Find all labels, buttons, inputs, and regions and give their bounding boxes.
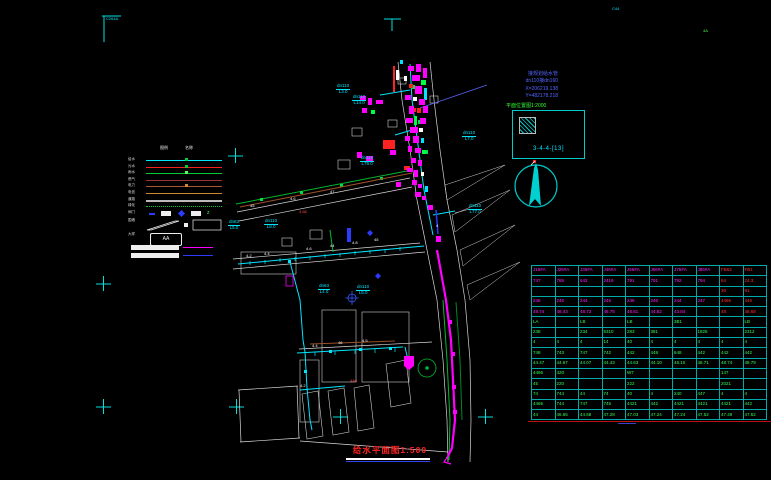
slope-hatch-layer [445, 165, 520, 300]
legend-row-label: 阀门 [128, 210, 135, 215]
table-cell: 246 [649, 296, 673, 306]
pipe-size-label: dn110L14.0 [352, 95, 366, 106]
table-cell: LB [743, 317, 767, 327]
micro-annotation: C44 [612, 7, 619, 11]
table-cell: 794 [696, 276, 720, 286]
table-cell: 1825 [696, 327, 720, 337]
table-cell: 4 [532, 338, 556, 348]
table-cell: 446 [743, 296, 767, 306]
table-cell: 4421 [696, 399, 720, 409]
table-cell: 48.73 [579, 307, 603, 317]
table-cell: 44.43 [602, 358, 626, 368]
table-cell: 4 [649, 338, 673, 348]
table-cell: 4466 [532, 368, 556, 378]
legend-row: 绿化 [127, 204, 231, 210]
legend-line-mark [185, 184, 188, 187]
table-cell: 747 [532, 276, 556, 286]
table-cell [696, 368, 720, 378]
legend-row-label: 给水 [128, 157, 135, 162]
table-cell: 742 [602, 348, 626, 358]
table-cell: 4 [649, 389, 673, 399]
micro-annotation: 4.66 [299, 210, 307, 214]
table-cell: J76#A [673, 266, 697, 276]
table-cell: 14 [602, 338, 626, 348]
table-cell: 448 [649, 348, 673, 358]
table-cell: 4 [696, 338, 720, 348]
legend-line-sample [146, 193, 222, 194]
table-row: J16#AJ26#AJ36#AJ46#AJ56#AJ66#AJ76#AJ86#A… [532, 266, 767, 276]
table-cell: 5310 [602, 327, 626, 337]
diamond-symbol [178, 210, 185, 217]
legend-line-sample [146, 200, 222, 203]
table-cell: 4421 [673, 399, 697, 409]
table-cell [649, 368, 673, 378]
table-cell [649, 379, 673, 389]
micro-annotation: 4.4 [264, 252, 270, 256]
table-cell: J56#A [626, 266, 650, 276]
table-row: 452202222021 [532, 379, 767, 389]
table-row: 74776564224197917917927946424.3 [532, 276, 767, 286]
table-cell [579, 379, 603, 389]
box-symbol [161, 211, 171, 216]
table-cell: 442 [626, 348, 650, 358]
table-row: 2462462442462462462442474466446 [532, 296, 767, 306]
table-cell: 744 [555, 389, 579, 399]
table-cell: 381 [649, 327, 673, 337]
table-cell: 44.10 [649, 358, 673, 368]
valve-symbol [149, 213, 155, 215]
table-cell [720, 327, 744, 337]
table-cell: 442 [649, 399, 673, 409]
north-arrow [515, 160, 557, 207]
table-cell: 48.79 [743, 358, 767, 368]
table-cell: 48.10 [673, 358, 697, 368]
annotation-line: Y=482178.218 [488, 93, 558, 100]
legend-header: 名称 [185, 145, 193, 151]
table-cell: 765 [555, 276, 579, 286]
detail-reference-box: 3-4-4-[13] [512, 110, 585, 159]
table-cell [579, 368, 603, 378]
detail-box-title: 平面位置图1:2000 [506, 102, 546, 109]
table-cell: 244 [673, 296, 697, 306]
table-cell: 442 [720, 348, 744, 358]
table-cell: 74 [602, 389, 626, 399]
table-cell: J46#A [602, 266, 626, 276]
table-cell: 48.74 [720, 358, 744, 368]
legend-row: 电信 [127, 191, 231, 197]
legend-line-sample [146, 206, 222, 208]
table-cell: 46.65 [555, 410, 579, 420]
legend-row-label: 绿化 [128, 203, 135, 208]
table-cell: 745 [602, 399, 626, 409]
table-cell: 48.76 [602, 307, 626, 317]
table-cell: 48.43 [555, 307, 579, 317]
micro-annotation: 45 [374, 238, 378, 242]
table-cell: 48 [720, 307, 744, 317]
table-cell: LB [626, 317, 650, 327]
table-cell: 244 [579, 296, 603, 306]
micro-annotation: 4.8 [352, 241, 358, 245]
legend-row: 电力 [127, 184, 231, 190]
table-cell: 2021 [720, 379, 744, 389]
pipe-size-label: dn110L7.0 [462, 131, 476, 142]
pipe-size-label: dn110L79.0 [360, 156, 374, 167]
table-row: 44657447477454421442442144214421442 [532, 399, 767, 409]
coordinate-annotation: 接规划给水管 dn110接dn160 X=206219.138 Y=482178… [488, 71, 558, 100]
table-row: 44.4744.6744.0744.4344.6344.1048.1048.71… [532, 358, 767, 368]
table-cell [696, 286, 720, 296]
table-cell: 47.52 [696, 410, 720, 420]
legend-line-sample [146, 186, 222, 187]
z-symbol: z [207, 210, 210, 216]
green-lines-layer [236, 170, 462, 460]
micro-annotation: 4.6 [290, 197, 296, 201]
table-cell [532, 286, 556, 296]
table-cell: 642 [579, 276, 603, 286]
title-underline-white [346, 458, 430, 460]
table-cell: 246 [602, 296, 626, 306]
red-elements-layer [383, 66, 419, 170]
table-cell: 283 [626, 327, 650, 337]
legend-row-label: 大样 [128, 232, 135, 237]
table-cell [696, 307, 720, 317]
legend-blue-line [183, 255, 213, 256]
table-cell: 2312 [743, 327, 767, 337]
table-cell: 743 [555, 348, 579, 358]
legend-magenta-line [183, 247, 213, 248]
micro-annotation: 4.6 [306, 247, 312, 251]
legend-row: 雨水 [127, 171, 231, 177]
legend-symbols-row: 阀门 z [127, 211, 231, 217]
table-cell [579, 286, 603, 296]
table-cell: 47.03 [626, 410, 650, 420]
table-cell: 47.52 [743, 410, 767, 420]
table-cell: 246 [532, 296, 556, 306]
table-cell [673, 368, 697, 378]
magenta-pipes-layer [286, 250, 455, 464]
table-cell: 744 [555, 399, 579, 409]
table-cell: 48.74 [532, 307, 556, 317]
legend-line-sample [146, 173, 222, 174]
annotation-line: X=206219.138 [488, 86, 558, 93]
table-cell: 2419 [602, 276, 626, 286]
micro-annotation: 4A6 [350, 379, 357, 383]
table-cell: 24.3 [743, 276, 767, 286]
table-underrule-red [528, 421, 771, 422]
table-cell: 748 [532, 348, 556, 358]
table-cell: LB [579, 317, 603, 327]
legend-row-label: 电信 [128, 190, 135, 195]
table-cell: 4 [720, 338, 744, 348]
table-row: 48.7448.4348.7348.7648.8144.8243.844848.… [532, 307, 767, 317]
table-cell: 4 [743, 338, 767, 348]
legend-row-label: 污水 [128, 164, 135, 169]
pipe-size-label: dn110L5.0 [356, 285, 370, 296]
well-schedule-table: J16#AJ26#AJ36#AJ46#AJ56#AJ66#AJ76#AJ86#A… [531, 265, 767, 420]
table-cell [555, 317, 579, 327]
table-cell: 74 [532, 389, 556, 399]
table-cell [743, 379, 767, 389]
table-cell: 791 [626, 276, 650, 286]
detail-sheet-number: 3-4-4-[13] [513, 146, 584, 152]
pipe-size-label: dn63L5.0 [228, 220, 240, 231]
table-cell: 791 [649, 276, 673, 286]
table-cell [673, 286, 697, 296]
legend-row: 污水 [127, 165, 231, 171]
table-cell [602, 317, 626, 327]
table-cell: 747 [579, 399, 603, 409]
green-circle-dot [425, 366, 429, 370]
table-cell: J36#A [579, 266, 603, 276]
roads-layer [233, 62, 471, 462]
title-underline-blue [346, 461, 430, 462]
table-cell [720, 317, 744, 327]
legend-line-mark [185, 165, 188, 168]
table-cell: 247 [696, 296, 720, 306]
table-row: 444144044444 [532, 338, 767, 348]
table-cell: 64 [720, 276, 744, 286]
table-row: 4466420W7147 [532, 368, 767, 378]
table-cell: 44.07 [579, 358, 603, 368]
table-row: 4446.6544.6847.2847.0347.2447.2447.5247.… [532, 410, 767, 420]
pipe-size-label: dn110L3.0 [336, 84, 350, 95]
hydrant-marker [404, 356, 414, 370]
legend-line-sample [146, 167, 222, 168]
table-cell: 447 [696, 389, 720, 399]
micro-annotation: 4.2 [246, 254, 252, 258]
legend-row-label: 电力 [128, 183, 135, 188]
legend-row-label: 燃气 [128, 177, 135, 182]
table-cell: 4 [579, 338, 603, 348]
table-cell: 44.63 [626, 358, 650, 368]
table-cell: 40 [626, 389, 650, 399]
table-cell: 747 [579, 348, 603, 358]
table-cell: 4 [743, 389, 767, 399]
table-cell: 442 [696, 348, 720, 358]
table-cell: 240 [673, 389, 697, 399]
table-cell: 44.68 [579, 410, 603, 420]
legend-bar [131, 253, 179, 258]
table-cell: LA [532, 317, 556, 327]
micro-annotation: 46 [338, 341, 342, 345]
table-underrule-blue [618, 423, 636, 424]
table-cell: 3B1 [673, 317, 697, 327]
table-cell: 4421 [626, 399, 650, 409]
table-cell: J26#A [555, 266, 579, 276]
micro-annotation: 44 [330, 244, 334, 248]
table-cell: 220 [555, 379, 579, 389]
table-cell [743, 368, 767, 378]
table-cell: J66#A [649, 266, 673, 276]
table-cell: 47.28 [602, 410, 626, 420]
table-cell: W7 [626, 368, 650, 378]
cad-drawing-canvas: 接规划给水管 dn110接dn160 X=206219.138 Y=482178… [0, 0, 771, 480]
table-cell: 4 [720, 389, 744, 399]
pipe-size-label: dn63L4.0 [318, 284, 330, 295]
table-cell: 81 [743, 286, 767, 296]
table-row: LALBLB3B1LB [532, 317, 767, 327]
table-cell: J16#A [532, 266, 556, 276]
table-cell: 648 [673, 348, 697, 358]
drawing-title: 给水平面图1:500 [300, 444, 480, 456]
table-cell: 442 [743, 348, 767, 358]
table-cell [602, 379, 626, 389]
pipe-size-label: dn110L8.0 [264, 219, 278, 230]
table-cell: 40 [626, 338, 650, 348]
legend-line-mark [185, 171, 188, 174]
table-cell: 246 [555, 296, 579, 306]
legend-row: 给水 [127, 158, 231, 164]
table-cell: 47.24 [673, 410, 697, 420]
pipe-size-label: dn110L77.0 [468, 204, 482, 215]
legend-line-sample [146, 160, 222, 161]
table-cell: J86#A [696, 266, 720, 276]
micro-annotation: 4 [436, 224, 438, 228]
table-cell: 44.67 [555, 358, 579, 368]
legend-header: 图例 [160, 145, 168, 151]
table-cell [626, 286, 650, 296]
table-cell: 4 [555, 338, 579, 348]
table-row: 748743747742442448648442442442 [532, 348, 767, 358]
table-cell: 147 [720, 368, 744, 378]
micro-annotation: 4.4 [312, 344, 318, 348]
table-cell: 48.71 [696, 358, 720, 368]
table-row: 238234531028338118252312 [532, 327, 767, 337]
micro-annotation: C264A [106, 17, 118, 21]
table-cell [649, 317, 673, 327]
legend-row-label: 道路 [128, 197, 135, 202]
table-cell [673, 327, 697, 337]
table-cell: 234 [579, 327, 603, 337]
table-cell: 47.49 [720, 410, 744, 420]
table-row: 74744447440424044744 [532, 389, 767, 399]
table-cell: 36 [720, 286, 744, 296]
table-cell: 792 [673, 276, 697, 286]
table-cell [555, 286, 579, 296]
table-cell [555, 327, 579, 337]
table-cell [649, 286, 673, 296]
legend-bar [131, 245, 179, 250]
table-cell: 48.68 [743, 307, 767, 317]
table-cell: 48.81 [626, 307, 650, 317]
table-cell: 238 [532, 327, 556, 337]
legend-row-label: 雨水 [128, 170, 135, 175]
table-cell [602, 286, 626, 296]
table-cell: 4421 [720, 399, 744, 409]
table-cell: 44.47 [532, 358, 556, 368]
box-symbol [191, 211, 201, 216]
table-cell: 4466 [720, 296, 744, 306]
table-cell: 43.84 [673, 307, 697, 317]
hatch-icon [519, 117, 536, 134]
table-cell: 420 [555, 368, 579, 378]
legend-row: 燃气 [127, 178, 231, 184]
micro-annotation: 4.5 [362, 339, 368, 343]
table-row: 3681 [532, 286, 767, 296]
table-cell [673, 379, 697, 389]
table-cell: 4 [673, 338, 697, 348]
table-cell: FB1 [743, 266, 767, 276]
legend-line-mark [185, 158, 188, 161]
annotation-line: dn110接dn160 [488, 78, 558, 85]
table-cell: 442 [743, 399, 767, 409]
micro-annotation: 45 [250, 204, 254, 208]
legend-parallelogram-row: 围墙 [127, 219, 231, 231]
table-cell [696, 379, 720, 389]
table-cell: 45 [532, 379, 556, 389]
table-cell: 44 [532, 410, 556, 420]
micro-annotation: 4.2 [300, 384, 306, 388]
table-cell: 4465 [532, 399, 556, 409]
table-cell [602, 368, 626, 378]
table-cell: 44 [579, 389, 603, 399]
table-cell: 47.24 [649, 410, 673, 420]
table-cell: 44.82 [649, 307, 673, 317]
legend-line-sample [146, 180, 222, 181]
table-cell: 222 [626, 379, 650, 389]
micro-annotation: 47 [330, 190, 334, 194]
table-cell: FB62 [720, 266, 744, 276]
table-cell: 246 [626, 296, 650, 306]
legend: 图例名称给水污水雨水燃气电力电信道路绿化 阀门 z 围墙 大样 AA [127, 145, 231, 265]
legend-row: 道路 [127, 198, 231, 204]
micro-annotation: 4A [703, 29, 708, 33]
table-cell [696, 317, 720, 327]
